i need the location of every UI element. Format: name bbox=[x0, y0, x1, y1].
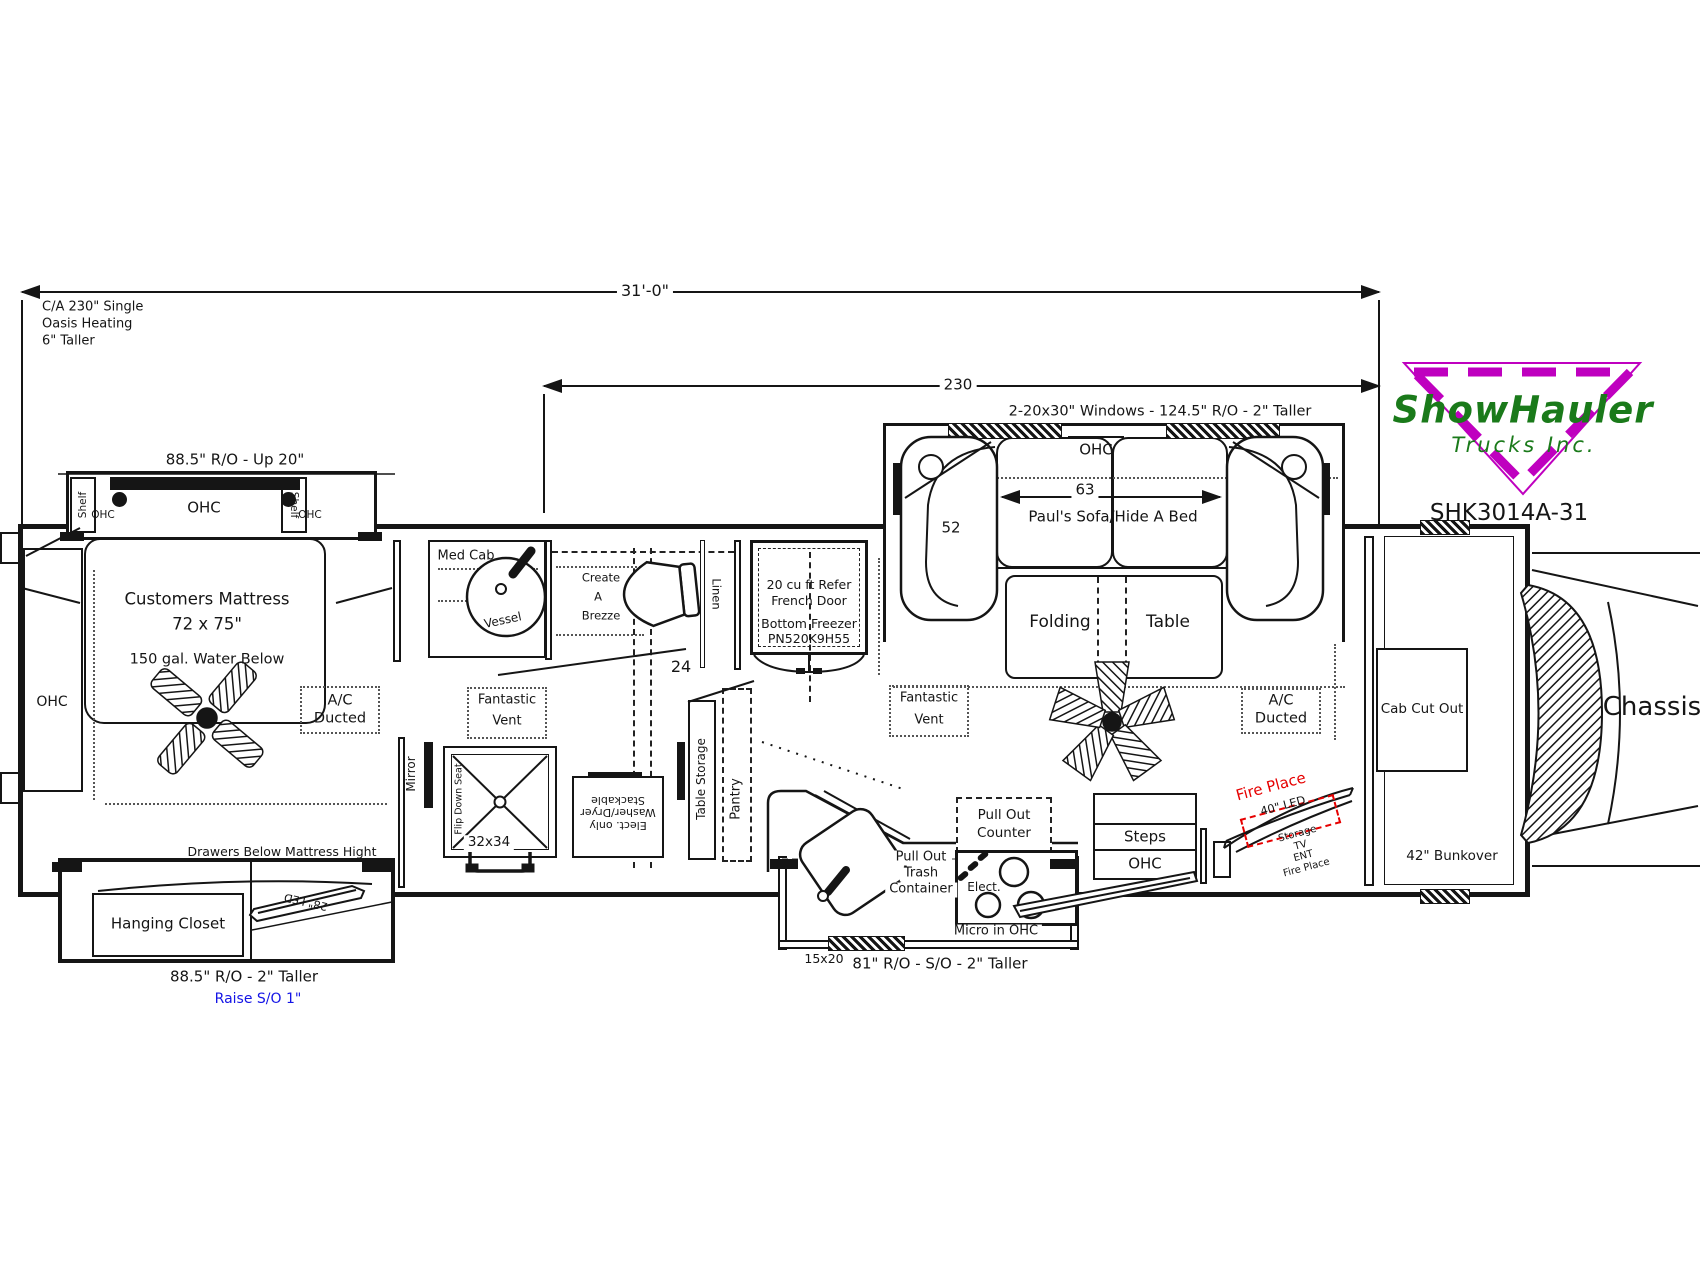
table-fold-line-2 bbox=[1125, 577, 1127, 677]
linen-label: Linen bbox=[709, 578, 722, 609]
mattress-size: 72 x 75" bbox=[172, 616, 242, 635]
front-cap-upper bbox=[0, 532, 20, 564]
folding-table-label-2: Table bbox=[1146, 613, 1190, 633]
mirror-panel bbox=[424, 742, 433, 808]
fridge-handle-left bbox=[796, 668, 805, 674]
sofa-window-right bbox=[1166, 423, 1280, 439]
speaker-left-icon bbox=[112, 492, 127, 507]
fireplace-bay-box bbox=[1213, 841, 1231, 878]
closet-slide-cap-right bbox=[362, 862, 392, 872]
shower-size-dim: 32x34 bbox=[464, 835, 514, 851]
bath-vent-line1: Fantastic bbox=[478, 694, 536, 709]
sofa-slide-cap-right bbox=[1318, 463, 1330, 515]
trash-line2: Trash bbox=[900, 867, 942, 882]
window-note: 2-20x30" Windows - 124.5" R/O - 2" Talle… bbox=[1009, 404, 1312, 421]
sofa-window-left bbox=[948, 423, 1062, 439]
kitchen-window-dim: 15x20 bbox=[804, 952, 843, 966]
sofa-ohc-label: OHC bbox=[1079, 441, 1113, 458]
water-tank-note: 150 gal. Water Below bbox=[130, 652, 285, 669]
kitchen-wall-left bbox=[778, 856, 787, 950]
steps-divider-2 bbox=[1095, 849, 1195, 851]
folding-table-label-1: Folding bbox=[1029, 613, 1090, 633]
sofa-label: Paul's Sofa/Hide A Bed bbox=[1028, 508, 1197, 525]
sofa-depth-dim: 52 bbox=[937, 519, 964, 536]
brand-subtitle: Trucks Inc. bbox=[1451, 433, 1596, 457]
pantry-outline bbox=[722, 688, 752, 862]
bunkover-window-bottom bbox=[1420, 889, 1470, 904]
fridge-line-4: PN520K9H55 bbox=[768, 632, 850, 646]
washer-label: Elect. only Washer/Dryer Stackable bbox=[580, 793, 655, 831]
living-ac-line1: A/C bbox=[1269, 693, 1294, 710]
flip-down-seat-label: Flip Down Seat bbox=[455, 763, 466, 834]
linen-wall-right bbox=[734, 540, 741, 670]
shelf-left-label: Shelf bbox=[77, 492, 89, 518]
mattress-title: Customers Mattress bbox=[124, 591, 289, 610]
bunkover-wall-left bbox=[1364, 536, 1374, 886]
sofa-slide-cap-left bbox=[893, 463, 904, 515]
brand-name: ShowHauler bbox=[1393, 390, 1654, 433]
bedroom-ac-line2: Ducted bbox=[314, 711, 366, 728]
pullout-counter-line2: Counter bbox=[977, 826, 1031, 842]
living-dotted-column bbox=[1334, 644, 1336, 740]
kitchen-window bbox=[828, 936, 905, 951]
living-vent-line1: Fantastic bbox=[900, 692, 958, 707]
washer-line-2: Washer/Dryer bbox=[580, 806, 655, 819]
fridge-line-3: Bottom Freezer bbox=[761, 617, 857, 631]
toilet-room-dashed-top bbox=[552, 551, 734, 553]
floorplan-canvas: C/A 230" Single Oasis Heating 6" Taller … bbox=[0, 0, 1700, 1275]
vanity-dotted-2 bbox=[438, 600, 538, 602]
bed-slide-cap-left bbox=[60, 532, 84, 541]
micro-label: Micro in OHC bbox=[950, 925, 1042, 940]
steps-label: Steps bbox=[1124, 828, 1166, 845]
trash-line1: Pull Out bbox=[892, 851, 951, 866]
bath-wall-upper bbox=[393, 540, 401, 662]
living-ac-line2: Ducted bbox=[1255, 711, 1307, 728]
table-fold-line-1 bbox=[1097, 577, 1099, 677]
kitchen-cap-left bbox=[770, 859, 798, 869]
toilet-label-1: Create bbox=[582, 571, 620, 584]
washer-top-bar bbox=[588, 772, 642, 778]
toilet-label-3: Brezze bbox=[582, 609, 621, 622]
bed-ohc-left-label: OHC bbox=[91, 509, 115, 521]
bedroom-ac-line1: A/C bbox=[328, 693, 353, 710]
living-vent-line2: Vent bbox=[914, 714, 943, 729]
bedroom-window bbox=[110, 477, 300, 490]
front-cap-lower bbox=[0, 772, 20, 804]
kitchen-cap-right bbox=[1050, 859, 1078, 869]
overall-length-dim: 31'-0" bbox=[617, 282, 673, 300]
closet-slide-cap-left bbox=[52, 862, 82, 872]
front-wall-cabinet bbox=[23, 548, 83, 792]
bath-walkway-dim: 24 bbox=[671, 658, 691, 676]
chassis-label: Chassis bbox=[1603, 693, 1700, 723]
mirror-label: Mirror bbox=[405, 756, 419, 791]
body-length-dim: 230 bbox=[940, 376, 977, 393]
fireplace-bay-wall bbox=[1200, 828, 1207, 884]
steps-ohc-label: OHC bbox=[1128, 855, 1162, 872]
drawing-number: SHK3014A-31 bbox=[1430, 500, 1588, 526]
drawers-note: Drawers Below Mattress Hight bbox=[188, 845, 377, 859]
cooktop-label: Elect. bbox=[967, 881, 1000, 895]
fridge-line-1: 20 cu ft Refer bbox=[767, 578, 852, 592]
bath-vent-line2: Vent bbox=[492, 715, 521, 730]
fridge-dotted-column bbox=[878, 558, 880, 675]
bedroom-dotted-line bbox=[105, 803, 387, 805]
closet-slide-ro-dim: 88.5" R/O - 2" Taller bbox=[170, 968, 318, 985]
washer-line-1: Elect. only bbox=[580, 818, 655, 831]
toilet-dotted-1 bbox=[556, 566, 644, 568]
kitchen-wall-bottom bbox=[778, 940, 1079, 949]
bed-ohc-right-label: OHC bbox=[298, 509, 322, 521]
hall-wall-cap bbox=[677, 742, 685, 800]
sofa-dotted-line bbox=[898, 477, 1338, 479]
closet-raise-note: Raise S/O 1" bbox=[215, 991, 302, 1007]
note-line-1: C/A 230" Single bbox=[42, 300, 143, 315]
toilet-label-2: A bbox=[594, 590, 602, 603]
pantry-label: Pantry bbox=[730, 778, 745, 820]
vanity-dotted-1 bbox=[438, 568, 538, 570]
note-line-2: Oasis Heating bbox=[42, 317, 132, 332]
pullout-counter-line1: Pull Out bbox=[978, 808, 1031, 824]
bed-ohc-label: OHC bbox=[187, 499, 221, 516]
trash-line3: Container bbox=[885, 883, 957, 898]
sofa-length-dim: 63 bbox=[1071, 481, 1098, 498]
hanging-closet-label: Hanging Closet bbox=[111, 915, 225, 932]
fridge-handle-right bbox=[813, 668, 822, 674]
table-storage-label: Table Storage bbox=[695, 738, 709, 820]
steps-divider-1 bbox=[1095, 823, 1195, 825]
note-line-3: 6" Taller bbox=[42, 334, 95, 349]
cab-cut-out-label: Cab Cut Out bbox=[1381, 702, 1464, 718]
washer-line-3: Stackable bbox=[580, 793, 655, 806]
bunkover-label: 42" Bunkover bbox=[1406, 849, 1498, 865]
med-cab-label: Med Cab bbox=[438, 550, 495, 565]
bath-wall-b bbox=[545, 540, 552, 660]
sofa-cushion-right bbox=[1112, 437, 1228, 568]
bed-slide-cap-right bbox=[358, 532, 382, 541]
toilet-dotted-2 bbox=[556, 634, 644, 636]
bedroom-dotted-column bbox=[93, 570, 95, 800]
fridge-line-2: French Door bbox=[771, 594, 847, 608]
closet-divider bbox=[250, 862, 252, 959]
wall-ohc-label: OHC bbox=[36, 694, 67, 710]
bed-slide-ro-dim: 88.5" R/O - Up 20" bbox=[166, 451, 305, 468]
linen-wall-left bbox=[700, 540, 705, 668]
kitchen-ro-dim: 81" R/O - S/O - 2" Taller bbox=[852, 955, 1027, 972]
